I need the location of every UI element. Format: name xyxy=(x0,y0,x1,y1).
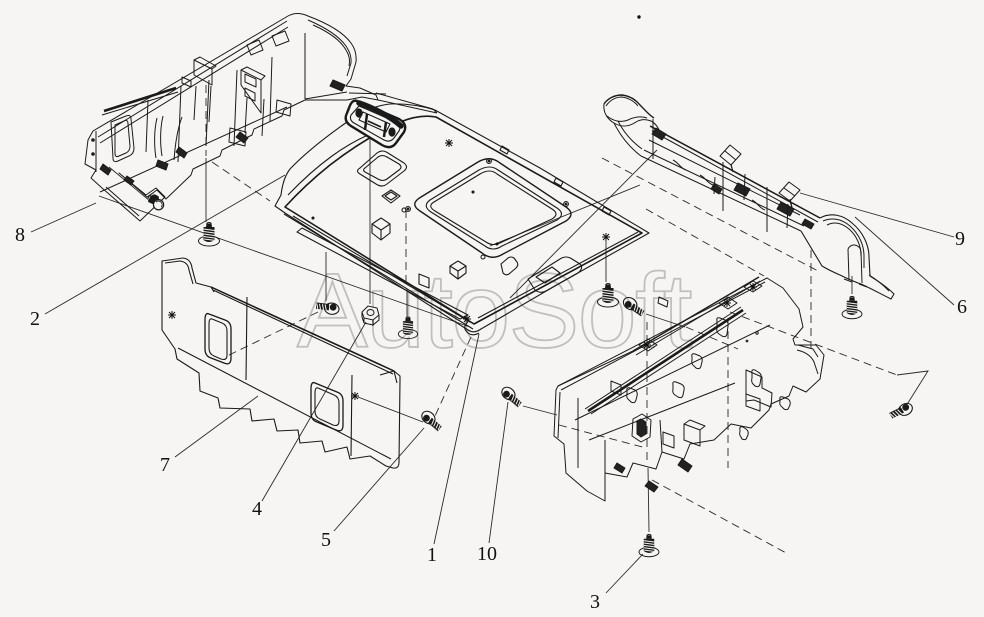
svg-text:2: 2 xyxy=(30,308,40,330)
svg-text:7: 7 xyxy=(160,454,170,476)
svg-text:9: 9 xyxy=(955,228,965,250)
svg-text:5: 5 xyxy=(321,529,331,551)
svg-text:8: 8 xyxy=(15,224,25,246)
svg-text:3: 3 xyxy=(590,591,600,613)
svg-text:4: 4 xyxy=(252,498,262,520)
svg-text:6: 6 xyxy=(957,296,967,318)
svg-text:10: 10 xyxy=(477,543,497,565)
svg-text:1: 1 xyxy=(427,544,437,566)
